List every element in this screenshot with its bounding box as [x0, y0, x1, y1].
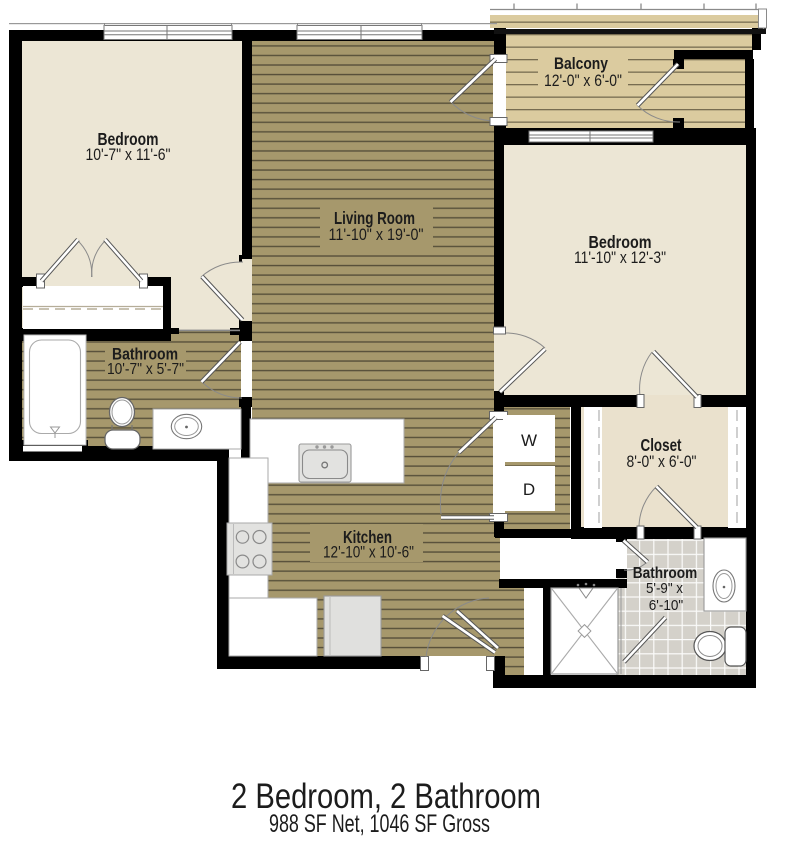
- svg-text:10'-7" x 5'-7": 10'-7" x 5'-7": [107, 361, 184, 378]
- svg-text:6'-10": 6'-10": [649, 597, 684, 614]
- svg-text:W: W: [521, 431, 537, 450]
- svg-text:D: D: [523, 480, 535, 499]
- svg-text:12'-0" x 6'-0": 12'-0" x 6'-0": [544, 72, 622, 90]
- svg-text:12'-10" x 10'-6": 12'-10" x 10'-6": [323, 544, 414, 562]
- svg-text:988 SF Net, 1046 SF Gross: 988 SF Net, 1046 SF Gross: [269, 810, 490, 838]
- svg-text:Closet: Closet: [641, 435, 682, 455]
- svg-text:Living Room: Living Room: [334, 208, 415, 228]
- svg-text:11'-10" x 12'-3": 11'-10" x 12'-3": [574, 249, 666, 267]
- svg-text:8'-0" x 6'-0": 8'-0" x 6'-0": [627, 453, 697, 471]
- svg-text:5'-9" x: 5'-9" x: [646, 580, 683, 597]
- svg-text:Balcony: Balcony: [554, 54, 608, 73]
- svg-text:10'-7" x 11'-6": 10'-7" x 11'-6": [86, 146, 171, 164]
- svg-text:11'-10" x 19'-0": 11'-10" x 19'-0": [329, 226, 424, 244]
